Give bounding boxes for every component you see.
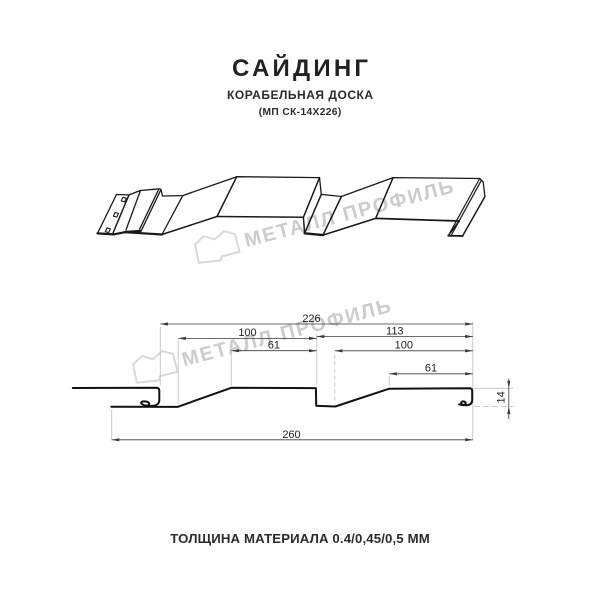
svg-text:61: 61: [425, 363, 437, 375]
svg-text:КОРАБЕЛЬНАЯ ДОСКА: КОРАБЕЛЬНАЯ ДОСКА: [227, 88, 373, 102]
svg-text:100: 100: [395, 340, 413, 352]
svg-text:САЙДИНГ: САЙДИНГ: [232, 54, 368, 82]
svg-text:МЕТАЛЛ ПРОФИЛЬ: МЕТАЛЛ ПРОФИЛЬ: [242, 176, 455, 252]
svg-text:(МП СК-14Х226): (МП СК-14Х226): [259, 107, 342, 118]
svg-text:61: 61: [268, 340, 280, 352]
svg-text:МЕТАЛЛ ПРОФИЛЬ: МЕТАЛЛ ПРОФИЛЬ: [180, 295, 393, 371]
svg-text:14: 14: [496, 391, 508, 403]
svg-text:100: 100: [238, 327, 256, 339]
svg-text:ТОЛЩИНА МАТЕРИАЛА 0.4/0,45/0,5: ТОЛЩИНА МАТЕРИАЛА 0.4/0,45/0,5 ММ: [170, 531, 429, 546]
svg-text:113: 113: [386, 325, 404, 337]
svg-text:260: 260: [282, 429, 300, 441]
svg-text:226: 226: [302, 313, 320, 325]
